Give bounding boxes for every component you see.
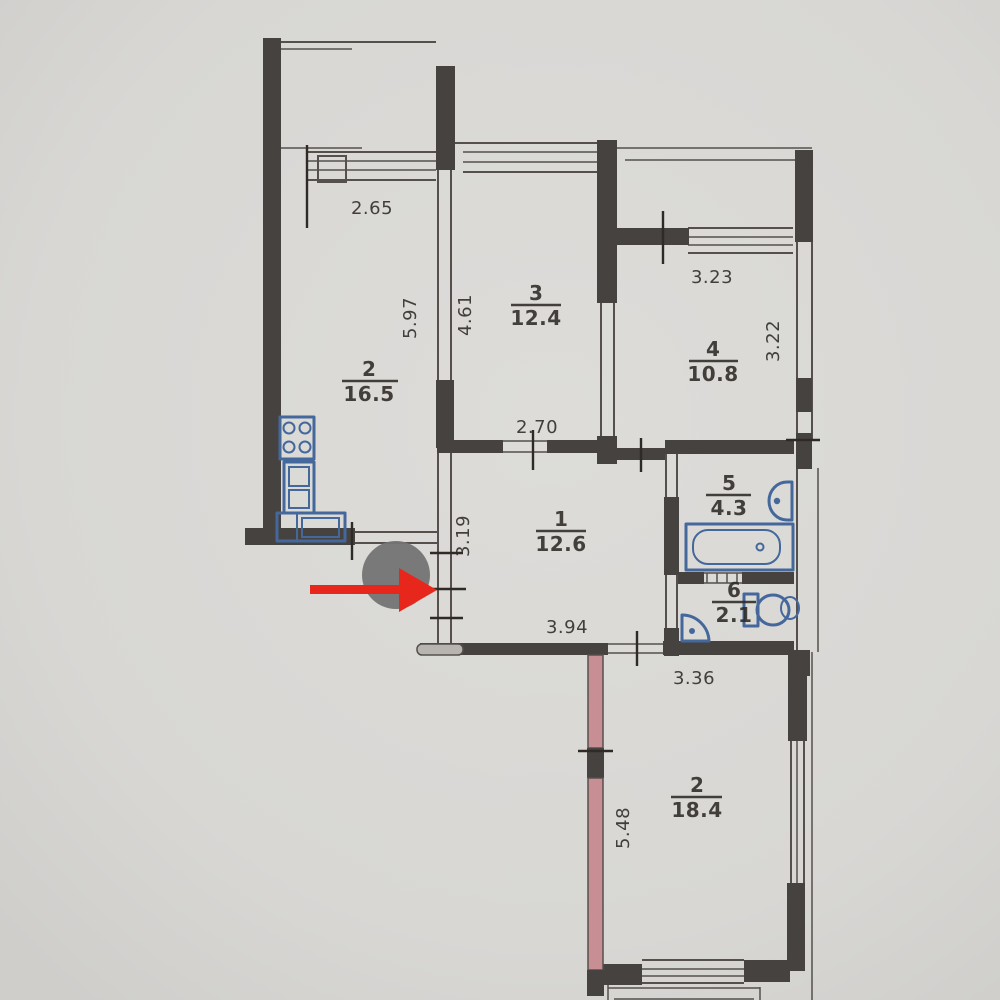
room-area: 12.4	[510, 306, 561, 330]
room-number: 4	[706, 337, 720, 361]
room-area: 4.3	[711, 496, 748, 520]
room-area: 16.5	[343, 382, 394, 406]
floor-plan-drawing: 2.65 5.97 4.61 2.70 3.23 3.22 3.19 3.94 …	[0, 0, 1000, 1000]
dimension-kitchen-window-width: 2.65	[351, 198, 393, 219]
room-area: 2.1	[716, 603, 753, 627]
room-area: 12.6	[535, 532, 586, 556]
dimension-bedroom-width: 3.36	[673, 668, 715, 689]
marked-pink-wall	[587, 655, 604, 996]
room-number: 2	[362, 357, 376, 381]
room-number: 6	[727, 578, 741, 602]
paper-background	[0, 0, 1000, 1000]
dimension-room4-depth: 3.22	[763, 320, 784, 362]
dimension-room3-width: 2.70	[516, 417, 558, 438]
room-area: 18.4	[671, 798, 722, 822]
room-number: 2	[690, 773, 704, 797]
dimension-room3-depth: 4.61	[455, 294, 476, 336]
room-number: 5	[722, 471, 736, 495]
floor-plan-photo: 2.65 5.97 4.61 2.70 3.23 3.22 3.19 3.94 …	[0, 0, 1000, 1000]
dimension-bedroom-depth: 5.48	[613, 807, 634, 849]
dimension-hall-left-depth: 3.19	[453, 515, 474, 557]
dimension-hall-width: 3.94	[546, 617, 588, 638]
dimension-kitchen-depth: 5.97	[400, 297, 421, 339]
room-area: 10.8	[687, 362, 738, 386]
wall-end-cap	[417, 644, 463, 655]
room-number: 3	[529, 281, 543, 305]
room-number: 1	[554, 507, 568, 531]
dimension-room4-width: 3.23	[691, 267, 733, 288]
